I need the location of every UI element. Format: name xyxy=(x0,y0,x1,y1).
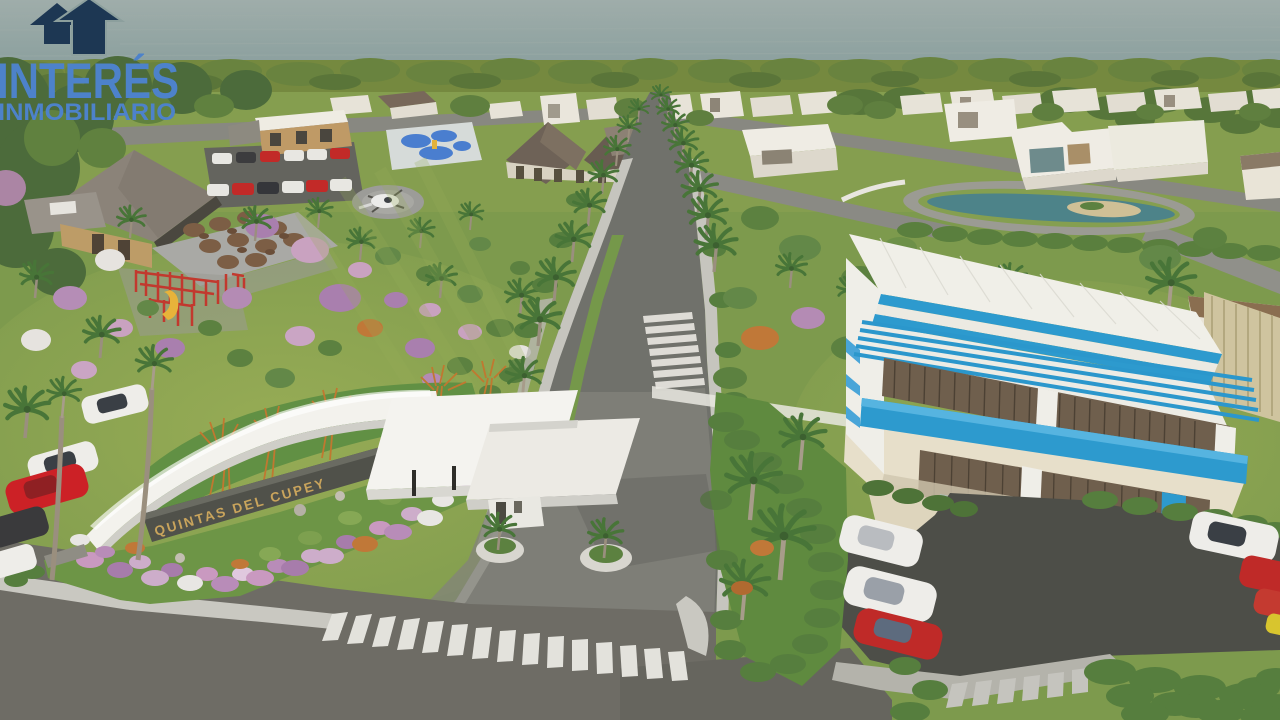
svg-text:INMOBILIARIO: INMOBILIARIO xyxy=(0,99,176,126)
